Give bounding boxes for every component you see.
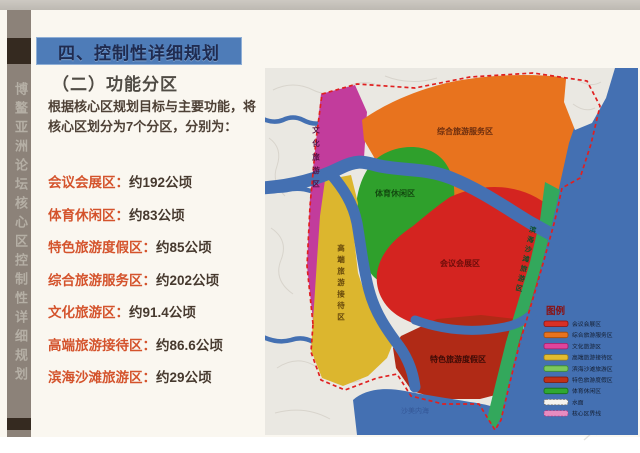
section-title: 四、控制性详细规划 xyxy=(58,39,220,64)
functional-zoning-map: 综合旅游服务区 体育休闲区 会议会展区 特色旅游度假区 文化旅游区 高端旅游接待… xyxy=(265,68,638,435)
label-comprehensive-tourism-service: 综合旅游服务区 xyxy=(437,126,493,136)
legend-row: 高端旅游接待区 xyxy=(544,354,613,362)
sidebar-vertical-title: 博鳌亚洲论坛核心区控制性详细规划 xyxy=(11,82,30,386)
legend-label: 体育休闲区 xyxy=(572,387,601,395)
legend-chip-green xyxy=(544,388,568,394)
list-item: 滨海沙滩旅游区：约29公顷 xyxy=(48,371,263,385)
zone-name: 特色旅游度假区： xyxy=(48,240,156,255)
legend-title: 图例 xyxy=(546,305,565,317)
zone-area: 约192公顷 xyxy=(129,175,192,190)
list-item: 会议会展区：约192公顷 xyxy=(48,176,263,190)
sidebar-bottom-block xyxy=(7,418,31,430)
subsection-title: （二）功能分区 xyxy=(52,70,178,95)
intro-paragraph: 根据核心区规划目标与主要功能，将核心区划分为7个分区，分别为： xyxy=(48,97,261,137)
top-band xyxy=(0,0,640,10)
legend-label: 核心区界线 xyxy=(572,410,601,418)
legend-chip-water xyxy=(544,399,568,405)
legend-label: 滨海沙滩旅游区 xyxy=(572,365,613,373)
legend-row: 滨海沙滩旅游区 xyxy=(544,365,613,373)
legend-chip-boundary xyxy=(544,411,568,417)
legend-row: 特色旅游度假区 xyxy=(544,376,613,384)
legend-row: 综合旅游服务区 xyxy=(544,331,613,339)
zone-area: 约202公顷 xyxy=(156,273,219,288)
legend-label: 文化旅游区 xyxy=(572,342,601,350)
legend-label: 综合旅游服务区 xyxy=(572,331,613,339)
zone-name: 文化旅游区： xyxy=(48,305,129,320)
label-highend-reception: 高端旅游接待区 xyxy=(336,243,345,325)
legend-label: 水面 xyxy=(572,398,584,406)
zone-name: 会议会展区： xyxy=(48,175,129,190)
legend-row: 文化旅游区 xyxy=(544,342,601,350)
list-item: 体育休闲区：约83公顷 xyxy=(48,209,263,223)
zone-area: 约29公顷 xyxy=(156,370,212,385)
section-title-bar: 四、控制性详细规划 xyxy=(36,37,242,65)
legend-chip-magenta xyxy=(544,343,568,349)
legend-label: 高端旅游接待区 xyxy=(572,354,613,362)
label-cultural-tourism: 文化旅游区 xyxy=(311,125,320,194)
legend-row: 会议会展区 xyxy=(544,320,601,328)
legend-chip-darkred xyxy=(544,377,568,383)
zone-list: 会议会展区：约192公顷 体育休闲区：约83公顷 特色旅游度假区：约85公顷 综… xyxy=(48,176,263,404)
sidebar-top-block xyxy=(7,38,31,64)
legend-row: 体育休闲区 xyxy=(544,387,601,395)
list-item: 综合旅游服务区：约202公顷 xyxy=(48,274,263,288)
zone-area: 约83公顷 xyxy=(129,208,185,223)
legend-chip-red xyxy=(544,321,568,327)
zone-area: 约85公顷 xyxy=(156,240,212,255)
zone-area: 约91.4公顷 xyxy=(129,305,196,320)
zone-name: 体育休闲区： xyxy=(48,208,129,223)
legend-label: 会议会展区 xyxy=(572,320,601,328)
label-featured-tourism-resort: 特色旅游度假区 xyxy=(430,354,486,364)
zone-name: 综合旅游服务区： xyxy=(48,273,156,288)
label-conference-exhibition: 会议会展区 xyxy=(440,258,480,268)
planning-map: 综合旅游服务区 体育休闲区 会议会展区 特色旅游度假区 文化旅游区 高端旅游接待… xyxy=(265,68,638,435)
legend-label: 特色旅游度假区 xyxy=(572,376,613,384)
legend-chip-lightgreen xyxy=(544,366,568,372)
slide: 博鳌亚洲论坛核心区控制性详细规划 四、控制性详细规划 （二）功能分区 根据核心区… xyxy=(0,0,640,453)
list-item: 高端旅游接待区：约86.6公顷 xyxy=(48,339,263,353)
list-item: 文化旅游区：约91.4公顷 xyxy=(48,306,263,320)
legend-chip-orange xyxy=(544,332,568,338)
label-water-body: 沙美内海 xyxy=(401,406,429,415)
zone-name: 滨海沙滩旅游区： xyxy=(48,370,156,385)
sidebar-banner: 博鳌亚洲论坛核心区控制性详细规划 xyxy=(7,10,31,437)
zone-name: 高端旅游接待区： xyxy=(48,338,156,353)
legend-chip-yellow xyxy=(544,355,568,361)
zone-area: 约86.6公顷 xyxy=(156,338,223,353)
list-item: 特色旅游度假区：约85公顷 xyxy=(48,241,263,255)
label-sports-leisure: 体育休闲区 xyxy=(375,188,415,198)
